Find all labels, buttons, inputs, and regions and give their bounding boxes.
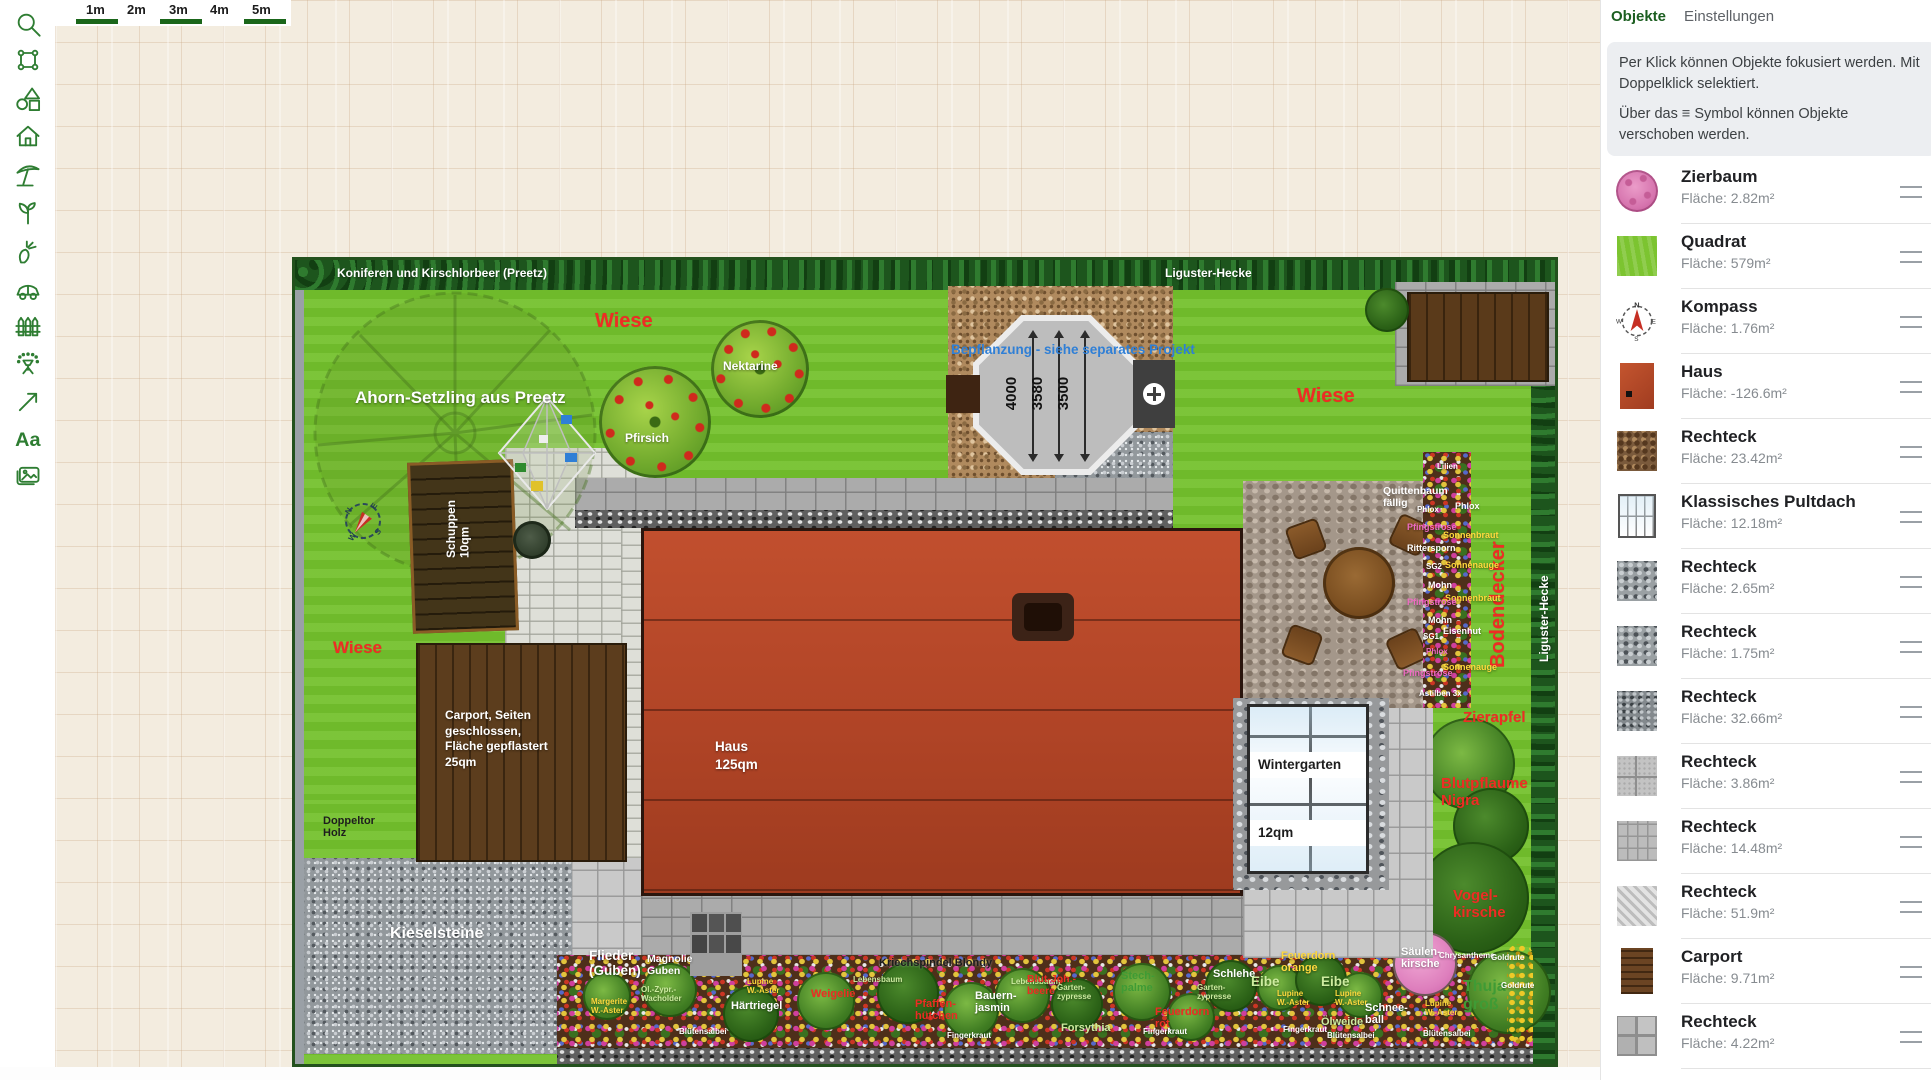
irrigation-icon[interactable] (14, 350, 42, 378)
object-title: Rechteck (1681, 1012, 1757, 1032)
plant-label: Stech- palme (1121, 970, 1155, 995)
plant-label: Schnee- ball (1365, 1002, 1408, 1027)
hatch-thumb (1617, 886, 1657, 926)
ruler-label: 5m (252, 2, 271, 17)
plant-label: Lupine W.-Aster (1335, 990, 1367, 1008)
plant-label: Lebensbaum (853, 976, 902, 985)
object-area: Fläche: 2.65m² (1681, 580, 1774, 596)
shed-label: Schuppen 10qm (445, 500, 472, 558)
plant-label: Blütensalbei (1327, 1032, 1375, 1041)
tiles-big-thumb (1617, 1016, 1657, 1056)
object-item-rechteck[interactable]: Rechteck Fläche: 32.66m² (1601, 678, 1931, 743)
vogelkirsche-label: Vogel- kirsche (1453, 888, 1506, 922)
object-area: Fläche: 4.22m² (1681, 1035, 1774, 1051)
object-item-pultdach[interactable]: Klassisches Pultdach Fläche: 12.18m² (1601, 483, 1931, 548)
garden-table[interactable] (1323, 547, 1395, 619)
pink-tree-thumb (1616, 170, 1658, 212)
plant-label: Schlehe (1213, 968, 1255, 980)
object-thumb (1611, 166, 1663, 216)
drag-handle-icon[interactable] (1900, 706, 1922, 718)
svg-text:Aa: Aa (15, 429, 41, 451)
object-area: Fläche: 2.82m² (1681, 190, 1774, 206)
text-icon[interactable]: Aa (14, 426, 42, 454)
gravel-thumb (1617, 626, 1657, 666)
object-item-rechteck[interactable]: Rechteck (1601, 1068, 1931, 1080)
plant-label: Feuerdorn rot (1155, 1006, 1209, 1031)
objects-panel: Objekte Einstellungen Per Klick können O… (1600, 0, 1931, 1080)
object-item-rechteck[interactable]: Rechteck Fläche: 23.42m² (1601, 418, 1931, 483)
object-title: Rechteck (1681, 817, 1757, 837)
house[interactable] (641, 528, 1243, 896)
object-item-rechteck[interactable]: Rechteck Fläche: 4.22m² (1601, 1003, 1931, 1068)
climbing-frame[interactable] (495, 393, 600, 513)
chimney-inner (1024, 603, 1062, 631)
manhole[interactable] (513, 521, 551, 559)
drag-handle-icon[interactable] (1900, 901, 1922, 913)
gravel-thumb (1617, 561, 1657, 601)
wintergarten-qm-label: 12qm (1258, 825, 1293, 840)
plant-label: Blütensalbei (1423, 1030, 1471, 1039)
ruler-label: 4m (210, 2, 229, 17)
hint-text-1: Per Klick können Objekte fokusiert werde… (1619, 53, 1925, 94)
object-item-rechteck[interactable]: Rechteck Fläche: 1.75m² (1601, 613, 1931, 678)
object-item-rechteck[interactable]: Rechteck Fläche: 51.9m² (1601, 873, 1931, 938)
plant-label: Margerite W.-Aster (591, 998, 627, 1016)
transform-icon[interactable] (14, 46, 42, 74)
zierapfel-label: Zierapfel (1463, 710, 1526, 727)
tree-label: Nektarine (723, 360, 778, 373)
hedge-label: Liguster-Hecke (1165, 267, 1252, 280)
tab-objekte[interactable]: Objekte (1611, 8, 1666, 25)
wintergarten[interactable] (1247, 704, 1369, 874)
ruler-bar (76, 19, 118, 24)
object-item-rechteck[interactable]: Rechteck Fläche: 14.48m² (1601, 808, 1931, 873)
valve-icon-bar (1147, 393, 1161, 396)
plant-label: Phlox (1417, 506, 1439, 515)
drag-handle-icon[interactable] (1900, 316, 1922, 328)
plant-label: Thuja groß (1463, 978, 1506, 1014)
plant-label: Feuerdorn orange (1281, 950, 1335, 975)
plant-label: Garten- zypresse (1197, 984, 1231, 1002)
plant-label: Eibe (1251, 974, 1280, 989)
svg-text:N: N (1634, 300, 1639, 309)
ruler-bar (160, 19, 202, 24)
object-title: Klassisches Pultdach (1681, 492, 1856, 512)
object-item-haus[interactable]: Haus Fläche: -126.6m² (1601, 353, 1931, 418)
object-title: Rechteck (1681, 882, 1757, 902)
hedge-label: Koniferen und Kirschlorbeer (Preetz) (337, 267, 547, 280)
tree-pfirsich[interactable] (599, 366, 711, 478)
tree-label: Pfirsich (625, 432, 669, 445)
object-title: Rechteck (1681, 557, 1757, 577)
wiese-label: Wiese (595, 310, 653, 332)
bed-bush[interactable] (797, 972, 855, 1030)
canvas-bottom-gap (0, 1067, 1600, 1080)
plant-label: Bauern- jasmin (975, 990, 1017, 1015)
object-area: Fläche: 3.86m² (1681, 775, 1774, 791)
liguster-label: Liguster-Hecke (1538, 542, 1551, 662)
object-title: Kompass (1681, 297, 1758, 317)
plant-label: Sonnenbraut (1443, 530, 1499, 540)
dimension-label: 3580 (1029, 377, 1046, 410)
plant-label: Kriechspindel Blondy (879, 957, 992, 969)
plant-label: Pfingstrose (1403, 668, 1453, 678)
plant-label: Rittersporn (1407, 543, 1456, 553)
plant-label: Goldrute (1491, 954, 1524, 963)
glass-roof-thumb (1618, 494, 1656, 538)
object-area: Fläche: 51.9m² (1681, 905, 1774, 921)
dark-tile-pad[interactable] (690, 912, 742, 976)
ruler-label: 3m (169, 2, 188, 17)
object-item-rechteck[interactable]: Rechteck Fläche: 2.65m² (1601, 548, 1931, 613)
object-title: Zierbaum (1681, 167, 1758, 187)
pavers-thumb (1617, 821, 1657, 861)
bottom-pebble-strip (557, 1048, 1533, 1064)
dimension-label: 4000 (1003, 377, 1020, 410)
ahorn-label: Ahorn-Setzling aus Preetz (355, 388, 566, 407)
plant-label: Magnolie Guben (647, 954, 693, 978)
search-icon[interactable] (14, 10, 42, 38)
plant-label: Goldrute (1501, 982, 1534, 991)
plant-label: SG2 (1426, 563, 1442, 572)
wintergarten-label: Wintergarten (1258, 757, 1341, 772)
plant-label: Lilien (1437, 463, 1458, 472)
gravel-dark-thumb (1617, 691, 1657, 731)
plant-label: Mohn (1428, 615, 1452, 625)
tiles-light-thumb (1617, 756, 1657, 796)
object-title: Rechteck (1681, 427, 1757, 447)
kieselsteine-label: Kieselsteine (390, 925, 483, 943)
drag-handle-icon[interactable] (1900, 966, 1922, 978)
drag-handle-icon[interactable] (1900, 576, 1922, 588)
drag-handle-icon[interactable] (1900, 771, 1922, 783)
scale-ruler: 1m 2m 3m 4m 5m (55, 0, 291, 26)
app-window: 1m 2m 3m 4m 5m Aa (0, 0, 1931, 1080)
plant-label: Chrysantheme (1439, 952, 1495, 961)
plant-label: Eisenhut (1443, 626, 1481, 636)
drag-handle-icon[interactable] (1900, 446, 1922, 458)
drag-handle-icon[interactable] (1900, 836, 1922, 848)
plant-label: Blütensalbei (679, 1028, 727, 1037)
house-thumb (1620, 363, 1654, 409)
object-area: Fläche: 9.71m² (1681, 970, 1774, 986)
round-tree[interactable] (1365, 288, 1409, 332)
drag-handle-icon[interactable] (1900, 511, 1922, 523)
drag-handle-icon[interactable] (1900, 381, 1922, 393)
object-item-rechteck[interactable]: Rechteck Fläche: 3.86m² (1601, 743, 1931, 808)
tab-einstellungen[interactable]: Einstellungen (1684, 8, 1774, 25)
image-icon[interactable] (14, 462, 42, 490)
blutpflaume-label: Blutpflaume Nigra (1441, 776, 1528, 810)
plant-label: Fingerkraut (947, 1032, 991, 1041)
svg-text:S: S (1634, 336, 1638, 342)
arrow-icon[interactable] (14, 388, 42, 416)
plant-label: Lupine W.-Aster (1425, 1000, 1457, 1018)
object-item-carport[interactable]: Carport Fläche: 9.71m² (1601, 938, 1931, 1003)
plant-label: Pfaffen- hütchen (915, 998, 958, 1023)
ruler-label: 2m (127, 2, 146, 17)
object-title: Rechteck (1681, 752, 1757, 772)
object-item-kompass[interactable]: N E S W Kompass Fläche: 1.76m² (1601, 288, 1931, 353)
vegetable-icon[interactable] (14, 238, 42, 266)
ruler-bar (244, 19, 286, 24)
parasol-icon[interactable] (14, 161, 42, 189)
cobble-thumb (1617, 431, 1657, 471)
object-area: Fläche: 1.75m² (1681, 645, 1774, 661)
plant-label: Ölweide (1321, 1016, 1363, 1028)
wiese-label: Wiese (1297, 385, 1355, 407)
plant-label: Sonnenauge (1445, 560, 1499, 570)
svg-text:E: E (1652, 319, 1656, 326)
wood-thumb (1621, 948, 1653, 994)
object-title: Carport (1681, 947, 1742, 967)
plant-label: SG1 (1423, 633, 1439, 642)
object-title: Quadrat (1681, 232, 1746, 252)
compass-thumb: N E S W (1616, 300, 1658, 342)
wood-deck[interactable] (1407, 292, 1549, 382)
carport-label: Carport, Seiten geschlossen, Fläche gepf… (445, 708, 548, 770)
plant-label: Phlox (1455, 501, 1480, 511)
drag-handle-icon[interactable] (1900, 251, 1922, 263)
pebble-edging (575, 510, 1173, 528)
object-title: Haus (1681, 362, 1723, 382)
plant-icon[interactable] (14, 199, 42, 227)
green-square-thumb (1617, 236, 1657, 276)
plant-label: Astilben 3x (1419, 690, 1462, 699)
planter-box[interactable] (946, 375, 980, 413)
drag-handle-icon[interactable] (1900, 1031, 1922, 1043)
plant-label: Mohn (1428, 580, 1452, 590)
doppeltor-label: Doppeltor Holz (323, 815, 375, 840)
plant-label: Lupine W.-Aster (747, 978, 779, 996)
plant-label: Forsythia (1061, 1022, 1111, 1034)
object-area: Fläche: -126.6m² (1681, 385, 1787, 401)
house-icon[interactable] (14, 122, 42, 150)
drag-handle-icon[interactable] (1900, 641, 1922, 653)
bepflanzung-label: Bepflanzung - siehe separates Projekt (951, 342, 1195, 357)
plant-label: Lupine W.-Aster (1277, 990, 1309, 1008)
wiese-label: Wiese (333, 638, 382, 657)
upper-path (575, 478, 1173, 512)
object-area: Fläche: 12.18m² (1681, 515, 1782, 531)
plant-label: Öl.-Zypr.- Wacholder (641, 986, 682, 1004)
plant-label: Härtriegel (731, 1000, 782, 1012)
plant-label: Eibe (1321, 974, 1350, 989)
garden-plan[interactable]: 4000 3580 3500 (292, 257, 1558, 1067)
object-item-quadrat[interactable]: Quadrat Fläche: 579m² (1601, 223, 1931, 288)
object-area: Fläche: 32.66m² (1681, 710, 1782, 726)
tool-sidebar: Aa (0, 0, 55, 1080)
plant-label: Pfingstrose (1407, 597, 1457, 607)
kieselsteine-area[interactable] (304, 858, 572, 1054)
object-area: Fläche: 14.48m² (1681, 840, 1782, 856)
object-item-zierbaum[interactable]: Zierbaum Fläche: 2.82m² (1601, 158, 1931, 223)
hint-box: Per Klick können Objekte fokusiert werde… (1607, 42, 1931, 156)
object-area: Fläche: 1.76m² (1681, 320, 1774, 336)
plant-label: Garten- zypresse (1057, 984, 1091, 1002)
haus-label: Haus 125qm (715, 738, 758, 773)
plant-label: Flieder (Guben) (589, 948, 641, 978)
object-area: Fläche: 579m² (1681, 255, 1770, 271)
right-hedge[interactable] (1531, 290, 1558, 1067)
hint-text-2: Über das ≡ Symbol können Objekte verscho… (1619, 104, 1925, 145)
car-icon[interactable] (14, 276, 42, 304)
shapes-icon[interactable] (14, 85, 42, 113)
dimension-label: 3500 (1055, 377, 1072, 410)
plant-label: Weigelie (811, 988, 855, 1000)
object-title: Rechteck (1681, 687, 1757, 707)
plant-label: Phlox (1426, 648, 1448, 657)
object-title: Rechteck (1681, 622, 1757, 642)
plant-label: Säulen- kirsche (1401, 946, 1441, 971)
svg-text:W: W (1616, 319, 1622, 326)
ruler-label: 1m (86, 2, 105, 17)
drag-handle-icon[interactable] (1900, 186, 1922, 198)
object-area: Fläche: 23.42m² (1681, 450, 1782, 466)
fence-icon[interactable] (14, 312, 42, 340)
